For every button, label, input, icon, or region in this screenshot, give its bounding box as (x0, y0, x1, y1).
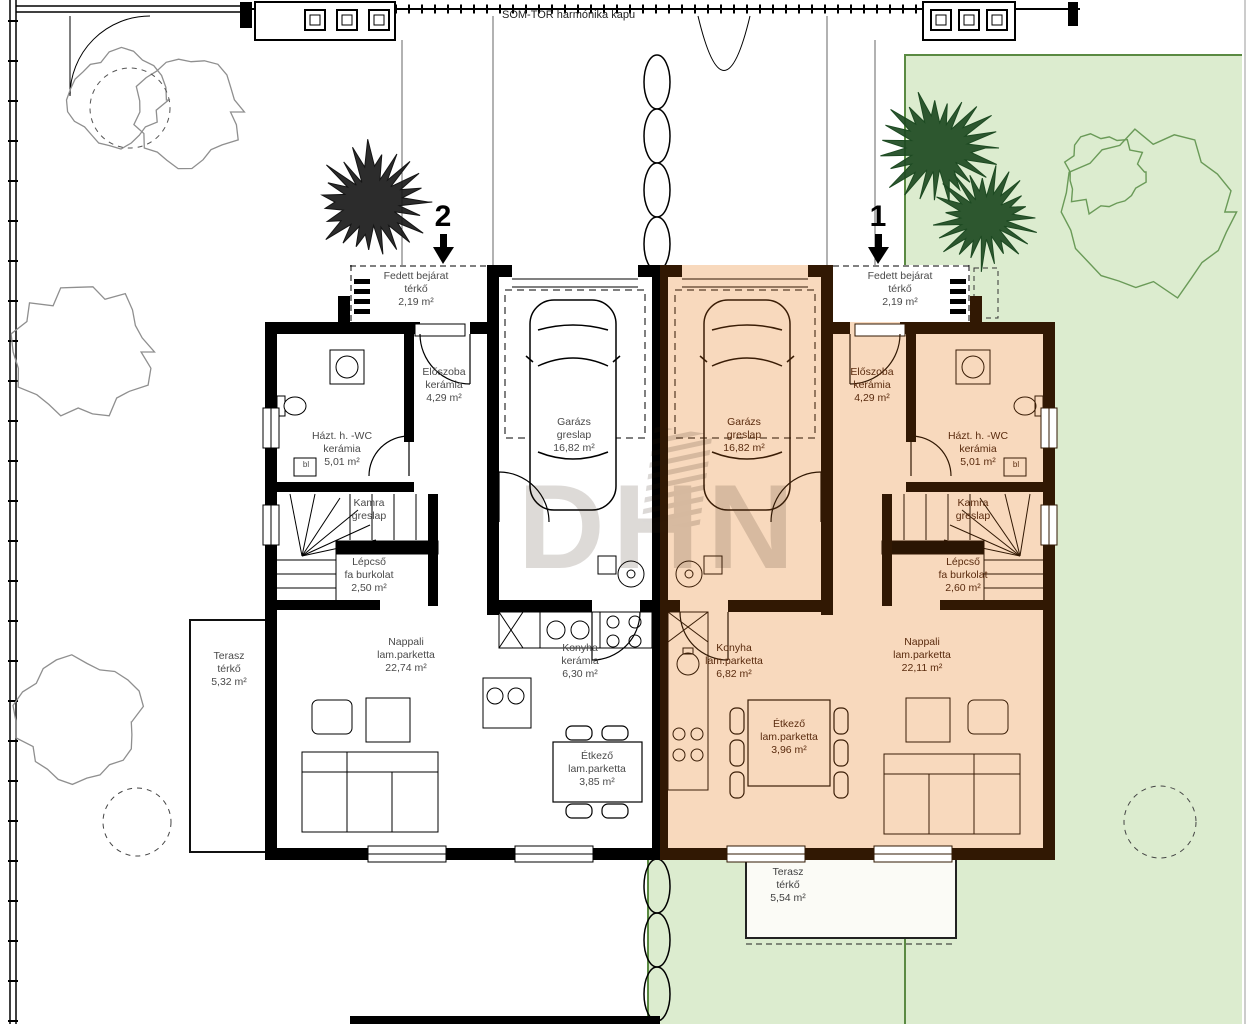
room-area: 2,19 m² (356, 296, 476, 309)
room-label-terasz-right: Terasz térkő 5,54 m² (736, 866, 840, 904)
gate-swing-arc-center (698, 16, 750, 71)
room-material: térkő (356, 283, 476, 296)
room-name: Garázs (694, 416, 794, 429)
room-material: kerámia (826, 379, 918, 392)
boiler-text: bl (303, 460, 309, 469)
room-label-lepcso-right: Lépcső fa burkolat 2,60 m² (912, 556, 1014, 594)
room-label-etkezo-right: Étkező lam.parketta 3,96 m² (738, 718, 840, 756)
planned-tree-dashed (103, 788, 171, 856)
room-name: Házt. h. -WC (286, 430, 398, 443)
room-name: Terasz (184, 650, 274, 663)
room-material: greslap (328, 510, 410, 523)
room-material: lam.parketta (866, 649, 978, 662)
room-material: kerámia (528, 655, 632, 668)
room-material: kerámia (922, 443, 1034, 456)
room-material: lam.parketta (738, 731, 840, 744)
unit-1-number: 1 (863, 202, 893, 232)
driveway-lines (402, 16, 875, 265)
room-label-fedett-bejarat-right: Fedett bejárat térkő 2,19 m² (840, 270, 960, 308)
room-label-fedett-bejarat-left: Fedett bejárat térkő 2,19 m² (356, 270, 476, 308)
room-material: kerámia (398, 379, 490, 392)
room-name: Kamra (328, 497, 410, 510)
room-label-konyha-left: Konyha kerámia 6,30 m² (528, 642, 632, 680)
room-area: 2,60 m² (912, 582, 1014, 595)
room-material: greslap (932, 510, 1014, 523)
room-name: Előszoba (398, 366, 490, 379)
room-area: 16,82 m² (524, 442, 624, 455)
room-material: térkő (840, 283, 960, 296)
room-material: lam.parketta (546, 763, 648, 776)
room-material: térkő (736, 879, 840, 892)
room-area: 5,32 m² (184, 676, 274, 689)
room-area: 22,74 m² (350, 662, 462, 675)
room-name: Lépcső (318, 556, 420, 569)
boiler-label-left: bl (296, 461, 316, 469)
tree (11, 287, 154, 416)
room-material: kerámia (286, 443, 398, 456)
room-material: fa burkolat (318, 569, 420, 582)
room-name: Előszoba (826, 366, 918, 379)
boiler-label-right: bl (1006, 461, 1026, 469)
room-name: Konyha (682, 642, 786, 655)
room-name: Étkező (738, 718, 840, 731)
room-area: 4,29 m² (398, 392, 490, 405)
room-label-garazs-left: Garázs greslap 16,82 m² (524, 416, 624, 454)
room-area: 5,54 m² (736, 892, 840, 905)
room-label-nappali-right: Nappali lam.parketta 22,11 m² (866, 636, 978, 674)
room-name: Étkező (546, 750, 648, 763)
room-name: Lépcső (912, 556, 1014, 569)
room-label-kamra-right: Kamra greslap (932, 497, 1014, 523)
room-label-etkezo-left: Étkező lam.parketta 3,85 m² (546, 750, 648, 788)
room-material: lam.parketta (682, 655, 786, 668)
room-material: lam.parketta (350, 649, 462, 662)
room-area: 2,50 m² (318, 582, 420, 595)
gate-box-right (923, 2, 1015, 40)
room-area: 6,30 m² (528, 668, 632, 681)
room-name: Fedett bejárat (840, 270, 960, 283)
room-label-nappali-left: Nappali lam.parketta 22,74 m² (350, 636, 462, 674)
gate-label-text: SOM-TOR harmónika kapu (502, 9, 635, 21)
unit-2-number: 2 (428, 202, 458, 232)
room-name: Nappali (866, 636, 978, 649)
room-material: greslap (524, 429, 624, 442)
room-material: greslap (694, 429, 794, 442)
room-name: Terasz (736, 866, 840, 879)
room-area: 3,85 m² (546, 776, 648, 789)
gate-label: SOM-TOR harmónika kapu (502, 9, 722, 22)
unit-2-arrow (433, 234, 454, 264)
tree (13, 655, 143, 785)
unit-1-arrow (868, 234, 889, 264)
room-area: 6,82 m² (682, 668, 786, 681)
room-label-eloszoba-left: Előszoba kerámia 4,29 m² (398, 366, 490, 404)
room-area: 2,19 m² (840, 296, 960, 309)
tree (67, 47, 169, 149)
room-material: térkő (184, 663, 274, 676)
room-area: 16,82 m² (694, 442, 794, 455)
room-label-terasz-left: Terasz térkő 5,32 m² (184, 650, 274, 688)
gate-box-left (255, 2, 395, 40)
tree (134, 59, 245, 168)
room-name: Garázs (524, 416, 624, 429)
room-material: fa burkolat (912, 569, 1014, 582)
room-name: Kamra (932, 497, 1014, 510)
room-label-garazs-right: Garázs greslap 16,82 m² (694, 416, 794, 454)
floor-plan-canvas: DHN SOM-TOR harmónika kapu 2 1 Fedett be… (0, 0, 1255, 1024)
room-label-lepcso-left: Lépcső fa burkolat 2,50 m² (318, 556, 420, 594)
room-label-eloszoba-right: Előszoba kerámia 4,29 m² (826, 366, 918, 404)
room-name: Konyha (528, 642, 632, 655)
boiler-text: bl (1013, 460, 1019, 469)
room-area: 22,11 m² (866, 662, 978, 675)
site-plan-drawing: DHN (0, 0, 1255, 1024)
room-name: Nappali (350, 636, 462, 649)
room-label-konyha-right: Konyha lam.parketta 6,82 m² (682, 642, 786, 680)
tree (322, 139, 432, 254)
room-name: Fedett bejárat (356, 270, 476, 283)
room-area: 3,96 m² (738, 744, 840, 757)
room-area: 4,29 m² (826, 392, 918, 405)
room-label-kamra-left: Kamra greslap (328, 497, 410, 523)
room-name: Házt. h. -WC (922, 430, 1034, 443)
